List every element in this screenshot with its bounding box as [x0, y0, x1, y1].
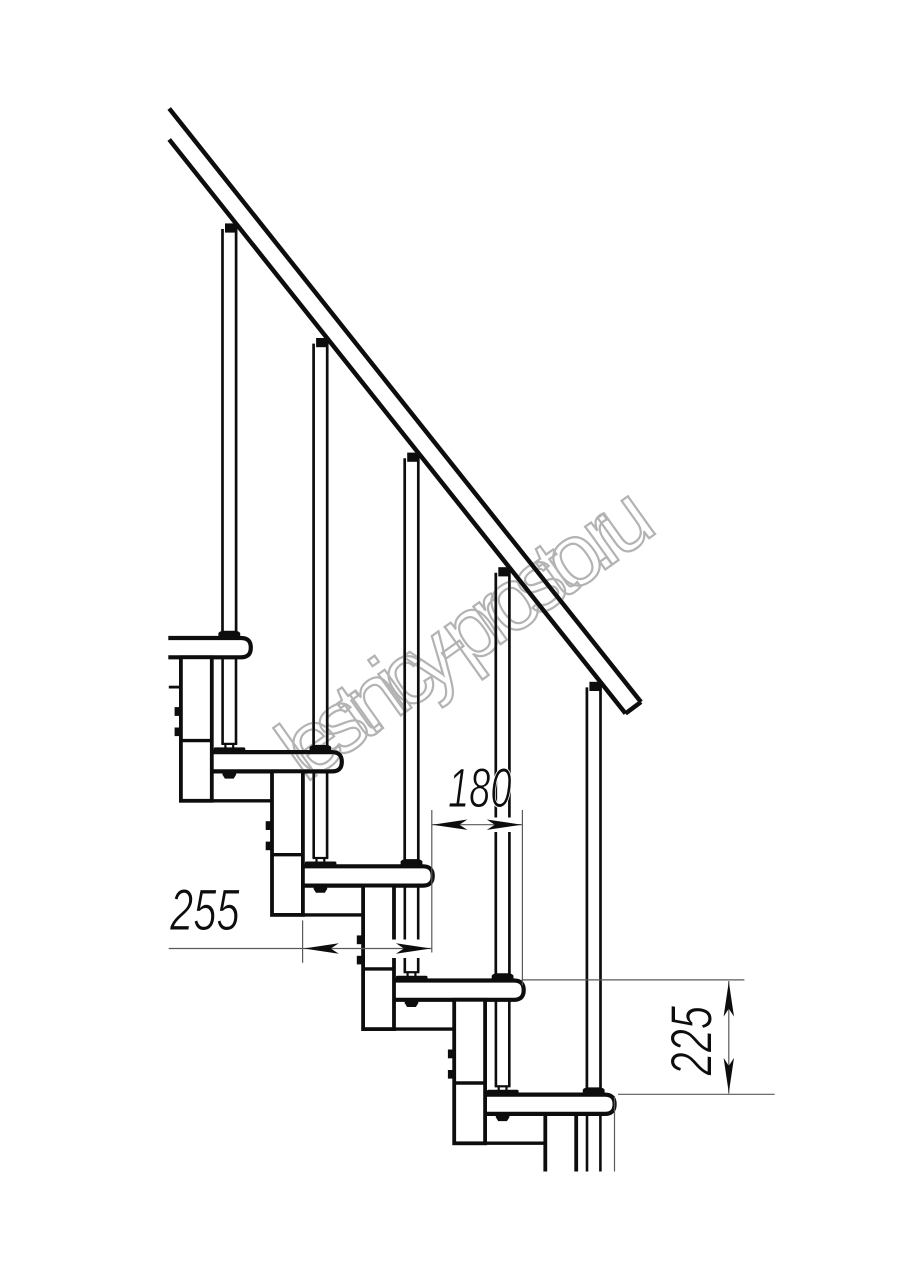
svg-text:180: 180	[448, 758, 512, 820]
svg-text:225: 225	[659, 1005, 724, 1076]
svg-text:255: 255	[169, 877, 240, 942]
svg-text:lestnicy-prosto.ru: lestnicy-prosto.ru	[259, 468, 667, 799]
